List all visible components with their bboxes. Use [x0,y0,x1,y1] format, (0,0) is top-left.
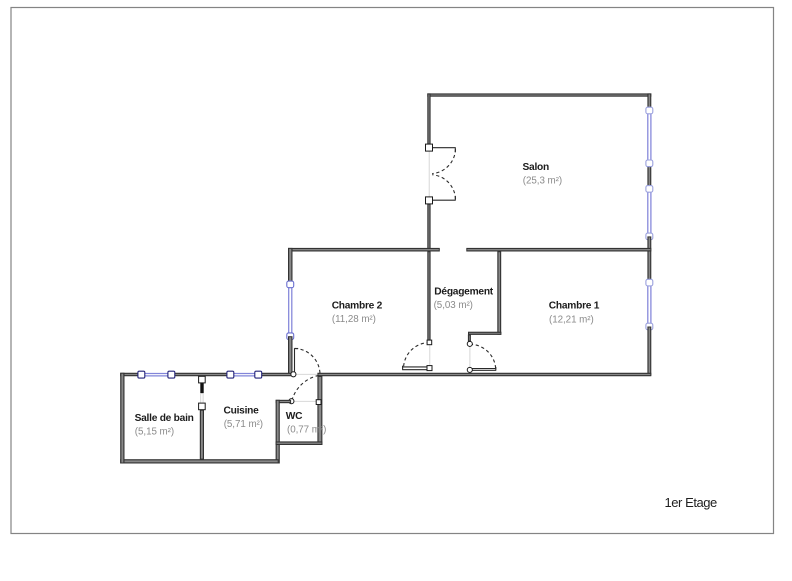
svg-text:(11,28 m²): (11,28 m²) [332,314,376,325]
svg-text:(5,03 m²): (5,03 m²) [434,300,473,311]
svg-text:Dégagement: Dégagement [434,286,493,297]
svg-text:Chambre 2: Chambre 2 [332,301,383,312]
svg-text:(25,3 m²): (25,3 m²) [523,176,562,187]
svg-text:WC: WC [286,411,303,422]
svg-text:1er Etage: 1er Etage [665,495,718,510]
svg-text:Chambre 1: Chambre 1 [549,301,600,312]
svg-text:Cuisine: Cuisine [224,405,260,416]
svg-text:(0,77 m²): (0,77 m²) [287,424,326,435]
svg-text:(5,15 m²): (5,15 m²) [135,427,174,438]
svg-text:(12,21 m²): (12,21 m²) [549,314,594,325]
svg-text:(5,71 m²): (5,71 m²) [224,419,263,430]
svg-text:Salle de bain: Salle de bain [135,413,194,424]
svg-text:Salon: Salon [523,162,550,173]
